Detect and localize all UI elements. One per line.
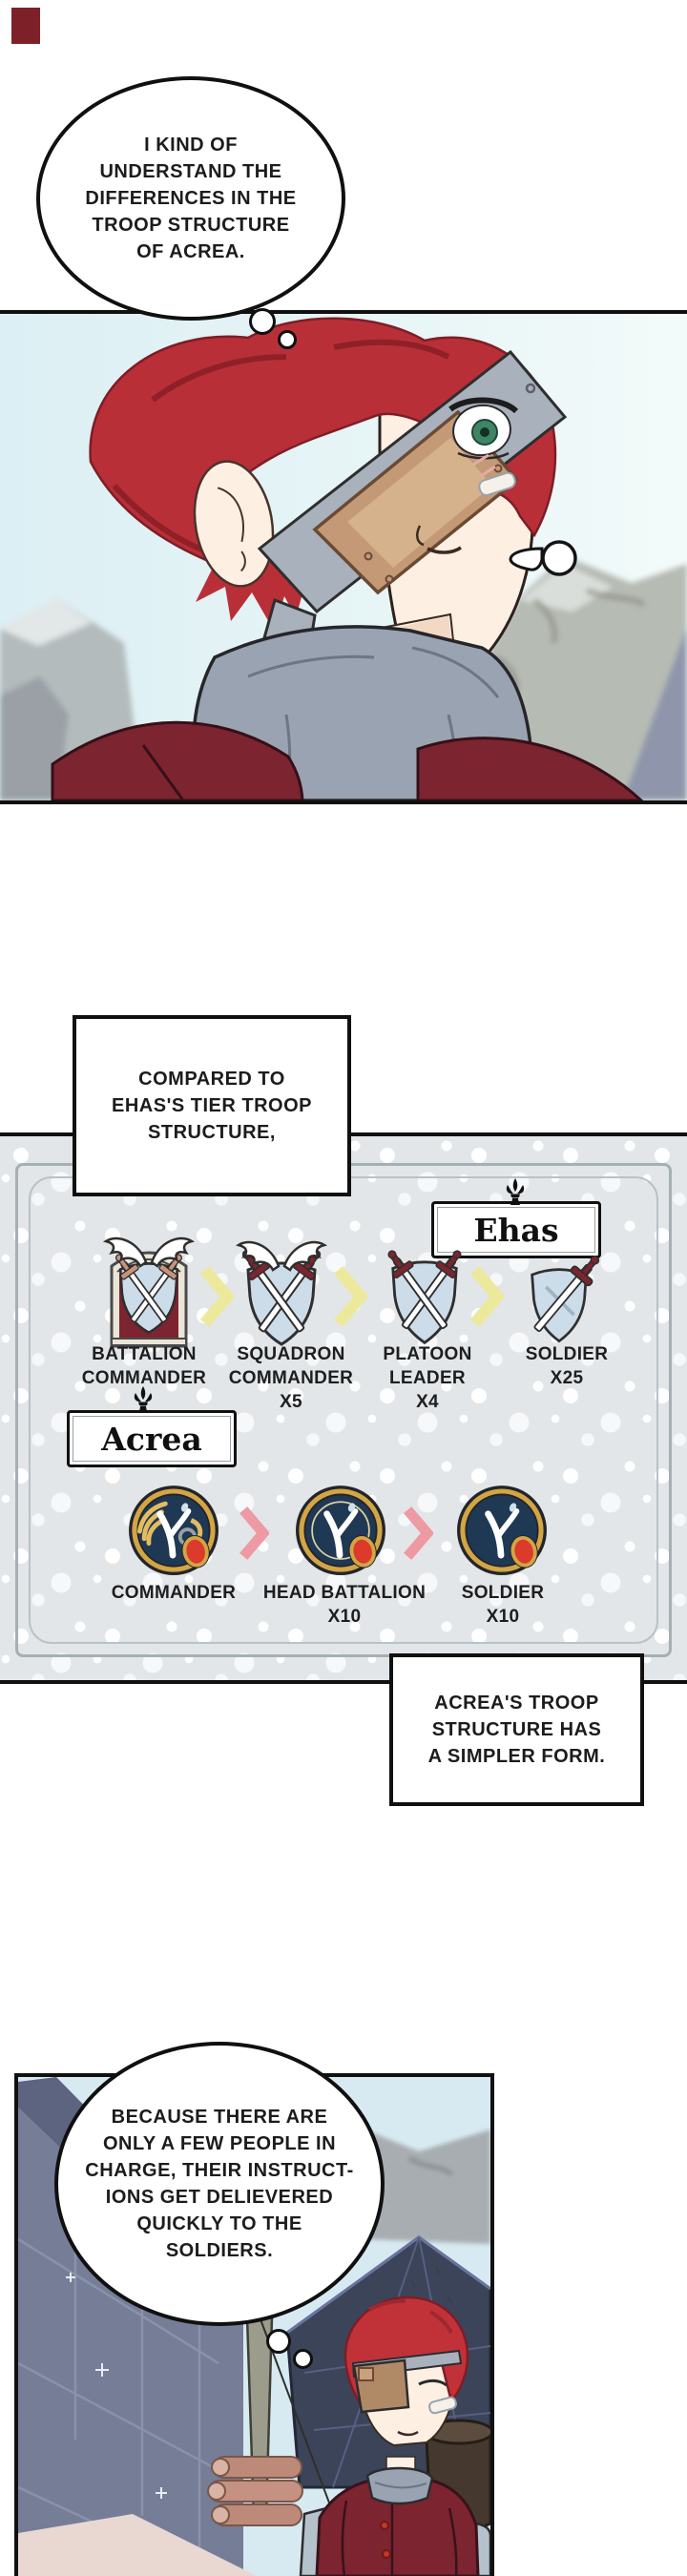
thought-tail-dot bbox=[266, 2329, 291, 2354]
rank-label-line: X25 bbox=[551, 1366, 584, 1390]
caption-compared-to: COMPARED TO EHAS'S TIER TROOP STRUCTURE, bbox=[73, 1015, 351, 1196]
fleur-de-lis-icon bbox=[503, 1178, 528, 1205]
bubble-line: I KIND OF bbox=[144, 132, 238, 158]
rank-label-line: X10 bbox=[328, 1605, 362, 1629]
log-pile bbox=[208, 2457, 302, 2525]
fleur-de-lis-icon bbox=[131, 1386, 156, 1413]
kingdom-name: Acrea bbox=[101, 1421, 201, 1458]
bubble-line: OF ACREA. bbox=[136, 239, 245, 265]
caption-simpler-form: ACREA'S TROOP STRUCTURE HAS A SIMPLER FO… bbox=[389, 1653, 644, 1806]
caption-line: EHAS'S TIER TROOP bbox=[112, 1092, 312, 1119]
rank-label-head-battalion: HEAD BATTALION X10 bbox=[254, 1581, 435, 1629]
rank-label-line: PLATOON bbox=[383, 1342, 471, 1366]
caption-line: ACREA'S TROOP bbox=[434, 1690, 598, 1716]
bubble-line: UNDERSTAND THE bbox=[99, 158, 281, 185]
caption-text: COMPARED TO EHAS'S TIER TROOP STRUCTURE, bbox=[76, 1019, 347, 1193]
page-corner-mark bbox=[11, 8, 40, 44]
bubble-line: QUICKLY TO THE bbox=[136, 2211, 302, 2237]
bubble-line: ONLY A FEW PEOPLE IN bbox=[103, 2130, 336, 2157]
rank-label-line: COMMANDER bbox=[229, 1366, 353, 1390]
closeup-illustration bbox=[0, 314, 687, 800]
rank-label-acrea-soldier: SOLDIER X10 bbox=[412, 1581, 593, 1629]
caption-line: STRUCTURE HAS bbox=[432, 1716, 602, 1743]
rank-label-line: LEADER bbox=[389, 1366, 466, 1390]
caption-line: COMPARED TO bbox=[138, 1066, 285, 1092]
thought-tail-dot bbox=[249, 308, 276, 335]
collar bbox=[367, 2468, 432, 2503]
thought-tail-dot bbox=[293, 2349, 313, 2369]
vest-button bbox=[383, 2550, 390, 2558]
bubble-line: IONS GET DELIEVERED bbox=[106, 2184, 333, 2211]
rank-label-line: SQUADRON bbox=[237, 1342, 344, 1366]
rank-label-line: SOLDIER bbox=[526, 1342, 609, 1366]
rank-label-ehas-soldier: SOLDIER X25 bbox=[486, 1342, 648, 1390]
vest-button bbox=[381, 2522, 388, 2529]
rank-label-line: HEAD BATTALION bbox=[263, 1581, 426, 1605]
bubble-line: SOLDIERS. bbox=[166, 2237, 273, 2264]
rank-label-line: COMMANDER bbox=[112, 1581, 236, 1605]
rank-label-battalion-commander: BATTALION COMMANDER bbox=[63, 1342, 225, 1390]
panel-troop-diagram: Ehas bbox=[0, 1132, 687, 1684]
rank-label-line: X5 bbox=[280, 1390, 302, 1414]
rank-label-platoon-leader: PLATOON LEADER X4 bbox=[346, 1342, 509, 1414]
eyepatch-buckle bbox=[359, 2368, 373, 2380]
bubble-line: CHARGE, THEIR INSTRUCT- bbox=[85, 2157, 354, 2184]
thought-bubble-text: I KIND OF UNDERSTAND THE DIFFERENCES IN … bbox=[40, 80, 342, 317]
comic-page: I KIND OF UNDERSTAND THE DIFFERENCES IN … bbox=[0, 0, 687, 2576]
kingdom-name: Ehas bbox=[473, 1212, 558, 1249]
bubble-line: BECAUSE THERE ARE bbox=[112, 2104, 328, 2130]
bubble-line: TROOP STRUCTURE bbox=[92, 212, 289, 239]
thought-tail-dot bbox=[278, 330, 297, 349]
rank-label-acrea-commander: COMMANDER bbox=[83, 1581, 264, 1605]
rank-label-line: X10 bbox=[487, 1605, 520, 1629]
thought-bubble-text: BECAUSE THERE ARE ONLY A FEW PEOPLE IN C… bbox=[58, 2046, 381, 2322]
caption-line: STRUCTURE, bbox=[148, 1119, 276, 1146]
bubble-line: DIFFERENCES IN THE bbox=[85, 185, 296, 212]
kingdom-banner-acrea: Acrea bbox=[67, 1410, 237, 1467]
caption-line: A SIMPLER FORM. bbox=[428, 1743, 606, 1770]
rank-label-line: BATTALION bbox=[92, 1342, 197, 1366]
rank-label-line: X4 bbox=[416, 1390, 439, 1414]
rank-label-line: SOLDIER bbox=[462, 1581, 545, 1605]
thought-bubble-troop-differences: I KIND OF UNDERSTAND THE DIFFERENCES IN … bbox=[36, 76, 345, 321]
caption-text: ACREA'S TROOP STRUCTURE HAS A SIMPLER FO… bbox=[393, 1657, 640, 1802]
panel-closeup bbox=[0, 310, 687, 804]
thought-bubble-few-people: BECAUSE THERE ARE ONLY A FEW PEOPLE IN C… bbox=[54, 2042, 385, 2326]
